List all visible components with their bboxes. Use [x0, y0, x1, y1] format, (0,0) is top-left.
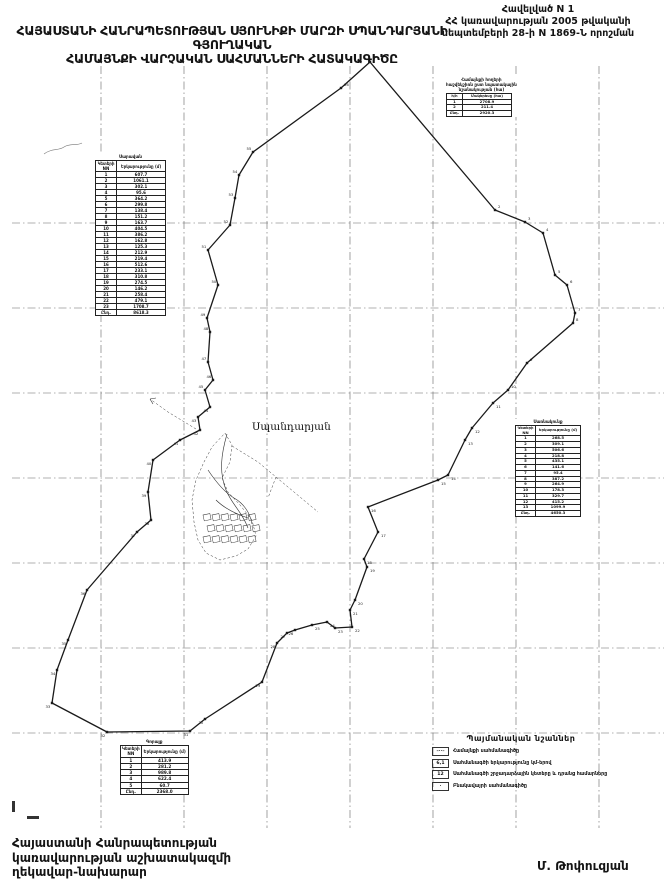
boundary-point-marker [252, 151, 254, 153]
boundary-point-marker [197, 416, 199, 418]
segment-table-south: ԳորայքԿետերի NNԵրկարությունը (մ)1413.922… [120, 739, 189, 795]
left-segments: Կետերի NNԵրկարությունը (մ)1607.721061.13… [95, 160, 166, 316]
boundary-point-marker [67, 639, 69, 641]
boundary-point-marker [369, 61, 371, 63]
boundary-point-marker [86, 589, 88, 591]
boundary-point-marker [437, 479, 439, 481]
boundary-point-number: 14 [451, 476, 456, 481]
column-header: Կետերի NN [96, 161, 117, 172]
boundary-point-number: 29 [256, 683, 261, 688]
boundary-point-marker [349, 609, 351, 611]
boundary-point-marker [366, 566, 368, 568]
legend-symbol: · [432, 782, 449, 791]
boundary-point-number: 30 [199, 720, 204, 725]
boundary-point-number: 18 [367, 560, 372, 565]
boundary-point-marker [229, 224, 231, 226]
boundary-point-marker [286, 632, 288, 634]
boundary-point-number: 4 [546, 227, 549, 232]
boundary-point-number: 48 [204, 326, 209, 331]
landuse-table: Համայնքի հողերիհաշվեկշիռն ըստ նպատակային… [446, 77, 517, 117]
boundary-point-number: 27 [281, 634, 286, 639]
boundary-point-marker [234, 197, 236, 199]
boundary-point-marker [494, 209, 496, 211]
boundary-point-marker [150, 519, 152, 521]
settlement-label: Սպանդարյան [252, 421, 331, 433]
table-caption: Սարավան [95, 154, 166, 159]
signatory-line1: Հայաստանի Հանրապետության [12, 836, 312, 851]
boundary-point-number: 11 [496, 404, 501, 409]
boundary-point-marker [542, 232, 544, 234]
column-header: Երկարությունը (մ) [141, 746, 188, 758]
boundary-point-marker [326, 621, 328, 623]
boundary-point-number: 21 [353, 611, 358, 616]
boundary-point-marker [56, 669, 58, 671]
boundary-point-marker [147, 491, 149, 493]
boundary-point-number: 28 [271, 644, 276, 649]
boundary-point-marker [204, 718, 206, 720]
column-header: Կետերի NN [121, 746, 142, 758]
boundary-point-number: 25 [315, 626, 320, 631]
boundary-point-number: 47 [202, 356, 207, 361]
boundary-point-number: 34 [51, 671, 56, 676]
right-segments: Կետերի NNԵրկարությունը (մ)1268.52309.135… [515, 425, 581, 517]
boundary-point-marker [199, 429, 201, 431]
boundary-point-marker [377, 531, 379, 533]
boundary-point-number: 8 [576, 317, 579, 322]
boundary-point-marker [152, 459, 154, 461]
boundary-point-marker [261, 681, 263, 683]
boundary-point-number: 12 [475, 429, 480, 434]
boundary-point-number: 44 [204, 408, 209, 413]
column-header: Երկարությունը (մ) [117, 161, 166, 172]
boundary-point-marker [209, 406, 211, 408]
legend-symbol: 6,1 [432, 759, 449, 768]
table-caption: Սառնակունք [515, 419, 581, 424]
legend-label: Բնակավայրի սահմանագիծը [453, 784, 527, 789]
legend-symbol: –··– [432, 747, 449, 756]
boundary-point-number: 56 [344, 82, 349, 87]
column-header: Կետերի NN [516, 426, 536, 436]
boundary-point-number: 52 [224, 219, 229, 224]
boundary-point-number: 36 [81, 591, 86, 596]
boundary-point-marker [276, 642, 278, 644]
boundary-point-number: 7 [578, 307, 581, 312]
boundary-point-number: 42 [194, 431, 199, 436]
boundary-point-marker [464, 439, 466, 441]
legend-label: Համայնքի սահմանագիծը [453, 749, 519, 754]
boundary-point-marker [526, 362, 528, 364]
boundary-point-marker [207, 249, 209, 251]
boundary-point-marker [204, 389, 206, 391]
total-row: Ընդ.4650.3 [516, 511, 581, 517]
boundary-point-number: 51 [202, 244, 207, 249]
legend-title: Պայմանական նշաններ [432, 734, 610, 743]
boundary-point-marker [217, 284, 219, 286]
signatory-title: Հայաստանի Հանրապետության կառավարության ա… [12, 836, 312, 880]
boundary-point-number: 43 [192, 418, 197, 423]
boundary-point-marker [566, 284, 568, 286]
boundary-point-number: 38 [145, 521, 150, 526]
segment-table-west: ՍարավանԿետերի NNԵրկարությունը (մ)1607.72… [95, 154, 166, 316]
boundary-point-marker [492, 402, 494, 404]
boundary-point-number: 26 [289, 631, 294, 636]
boundary-point-marker [189, 730, 191, 732]
boundary-point-number: 33 [46, 704, 51, 709]
boundary-point-number: 37 [131, 533, 136, 538]
boundary-point-marker [207, 361, 209, 363]
legend-item-2: 6,1Սահմանագծի երկարությունը կմ-երով [432, 759, 610, 768]
legend-item-1: –··–Համայնքի սահմանագիծը [432, 747, 610, 756]
boundary-point-number: 6 [570, 279, 573, 284]
signatory-line3: ղեկավար-նախարար [12, 865, 312, 880]
boundary-point-number: 39 [142, 493, 147, 498]
boundary-point-number: 55 [247, 146, 252, 151]
boundary-point-marker [574, 312, 576, 314]
segment-table-east: ՍառնակունքԿետերի NNԵրկարությունը (մ)1268… [515, 419, 581, 517]
boundary-point-number: 35 [62, 641, 67, 646]
boundary-point-number: 54 [233, 169, 238, 174]
boundary-point-number: 53 [229, 192, 234, 197]
column-header: Երկարությունը (մ) [536, 426, 581, 436]
legend-label: Սահմանագծի շրջադարձային կետերը և դրանց հ… [453, 772, 607, 777]
boundary-point-number: 41 [174, 441, 179, 446]
boundary-point-marker [340, 87, 342, 89]
boundary-point-marker [51, 702, 53, 704]
boundary-point-marker [447, 474, 449, 476]
boundary-point-marker [209, 331, 211, 333]
boundary-point-marker [367, 506, 369, 508]
legend-item-4: ·Բնակավայրի սահմանագիծը [432, 782, 610, 791]
boundary-point-number: 23 [338, 629, 343, 634]
boundary-point-number: 19 [370, 568, 375, 573]
boundary-point-marker [507, 389, 509, 391]
legend-label: Սահմանագծի երկարությունը կմ-երով [453, 761, 551, 766]
legend-symbol: 12 [432, 770, 449, 779]
bottom-segments: Կետերի NNԵրկարությունը (մ)1413.92281.239… [120, 745, 189, 795]
settlement-name: Սպանդարյան [252, 421, 331, 433]
boundary-point-number: 20 [358, 601, 363, 606]
boundary-point-number: 2 [498, 204, 501, 209]
scan-mark [12, 801, 15, 812]
boundary-point-marker [106, 731, 108, 733]
boundary-point-number: 32 [101, 733, 106, 738]
boundary-point-number: 50 [212, 279, 217, 284]
boundary-point-number: 45 [199, 384, 204, 389]
boundary-point-marker [354, 599, 356, 601]
boundary-point-number: 15 [441, 481, 446, 486]
signatory-line2: կառավարության աշխատակազմի [12, 851, 312, 866]
boundary-point-marker [311, 624, 313, 626]
boundary-point-marker [572, 322, 574, 324]
landuse: հ/հՄակերեսը (հա)12708.92211.4Ընդ.2920.3 [446, 93, 512, 117]
boundary-point-number: 3 [528, 216, 531, 221]
total-row: Ընդ.8618.3 [96, 310, 166, 316]
boundary-point-marker [524, 221, 526, 223]
settlement-area [44, 143, 318, 560]
boundary-point-number: 5 [558, 269, 561, 274]
boundary-point-number: 46 [207, 374, 212, 379]
scan-mark [27, 816, 39, 819]
boundary-point-number: 49 [201, 312, 206, 317]
boundary-point-marker [471, 427, 473, 429]
boundary-point-number: 1 [373, 56, 376, 61]
boundary-point-number: 16 [371, 508, 376, 513]
boundary-point-marker [238, 174, 240, 176]
boundary-point-marker [351, 626, 353, 628]
boundary-point-number: 10 [511, 384, 516, 389]
total-row: Ընդ.2920.3 [447, 111, 512, 117]
boundary-point-number: 17 [381, 533, 386, 538]
table-caption: Համայնքի հողերիհաշվեկշիռն ըստ նպատակային… [446, 77, 517, 92]
table-caption: Գորայք [120, 739, 189, 744]
boundary-point-marker [212, 379, 214, 381]
boundary-point-marker [136, 531, 138, 533]
boundary-point-number: 22 [355, 628, 360, 633]
map-legend: Պայմանական նշաններ –··–Համայնքի սահմանագ… [432, 734, 610, 793]
boundary-point-marker [206, 317, 208, 319]
signatory-name: Մ. Թոփուզյան [537, 859, 629, 873]
boundary-point-marker [179, 439, 181, 441]
boundary-point-marker [294, 629, 296, 631]
legend-item-3: 12Սահմանագծի շրջադարձային կետերը և դրանց… [432, 770, 610, 779]
boundary-point-number: 13 [468, 441, 473, 446]
boundary-point-number: 24 [330, 623, 335, 628]
boundary-point-number: 31 [184, 732, 189, 737]
total-row: Ընդ.2368.0 [121, 788, 189, 794]
boundary-point-marker [554, 274, 556, 276]
boundary-point-marker [363, 558, 365, 560]
boundary-point-number: 40 [147, 461, 152, 466]
